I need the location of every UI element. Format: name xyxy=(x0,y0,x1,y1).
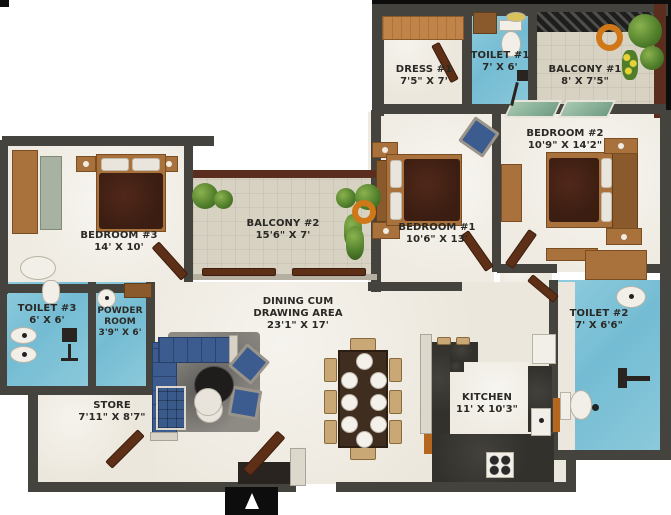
room-name: POWDER ROOM xyxy=(94,306,146,328)
shower-base xyxy=(61,358,78,361)
room-size: 7' X 6'6" xyxy=(554,320,644,332)
room-size: 15'6" X 7' xyxy=(228,230,338,242)
pillow xyxy=(132,158,160,171)
room-size: 10'9" X 14'2" xyxy=(510,140,620,152)
shower-stand xyxy=(68,344,71,358)
wall xyxy=(550,450,671,460)
sofa xyxy=(158,337,230,363)
wall-maroon xyxy=(193,170,377,178)
room-name: BEDROOM #3 xyxy=(64,230,174,242)
dress-wardrobe xyxy=(382,16,464,40)
pillow xyxy=(390,160,402,188)
planter-ring xyxy=(596,24,623,51)
bed-mattress xyxy=(404,159,460,221)
wardrobe xyxy=(501,164,522,222)
kitchen-partition xyxy=(420,334,432,434)
nightstand xyxy=(606,228,642,245)
pillow xyxy=(601,192,612,222)
floor-plan: DRESS #1 7'5" X 7' TOILET #1 7' X 6' BAL… xyxy=(0,0,671,515)
vanity xyxy=(585,250,647,280)
room-size: 10'6" X 13' xyxy=(382,234,492,246)
toilet-flush xyxy=(22,352,27,357)
plant-icon xyxy=(628,14,662,48)
wall xyxy=(660,110,671,460)
room-label-dining: DINING CUM DRAWING AREA 23'1" X 17' xyxy=(248,296,348,333)
room-name: KITCHEN xyxy=(437,392,537,404)
room-label-toilet-3: TOILET #3 6' X 6' xyxy=(7,303,87,327)
plate xyxy=(341,372,358,389)
room-size: 7'5" X 7' xyxy=(384,76,464,88)
plant-icon xyxy=(640,46,664,70)
room-size: 6' X 6' xyxy=(7,315,87,327)
sink-drain xyxy=(105,296,109,300)
floor-drain xyxy=(592,404,599,411)
kitchen-counter xyxy=(450,362,464,372)
dining-chair xyxy=(324,358,337,382)
room-label-bedroom-1: BEDROOM #1 10'6" X 13' xyxy=(382,222,492,246)
wall xyxy=(0,140,8,294)
toilet1-cabinet xyxy=(473,12,497,34)
nightstand xyxy=(76,156,96,172)
room-label-bedroom-2: BEDROOM #2 10'9" X 14'2" xyxy=(510,128,620,152)
bed-mattress xyxy=(549,158,599,222)
toilet-flush xyxy=(22,333,27,338)
dining-chair xyxy=(389,390,402,414)
dining-chair xyxy=(324,390,337,414)
pillow xyxy=(601,158,612,188)
wall xyxy=(2,284,144,293)
room-size: 14' X 10' xyxy=(64,242,174,254)
sofa-armrest xyxy=(150,432,178,441)
room-name: STORE xyxy=(62,400,162,412)
pillow xyxy=(390,192,402,220)
room-name: BEDROOM #1 xyxy=(382,222,492,234)
room-label-kitchen: KITCHEN 11' X 10'3" xyxy=(437,392,537,416)
wardrobe-panel xyxy=(40,156,62,230)
dining-chair xyxy=(324,420,337,444)
room-name: TOILET #3 xyxy=(7,303,87,315)
north-arrow-icon xyxy=(245,493,259,509)
room-label-powder-room: POWDER ROOM 3'9" X 6' xyxy=(94,306,146,339)
sink-drain xyxy=(629,294,634,299)
pillow xyxy=(101,158,129,171)
bed-mattress xyxy=(99,173,163,229)
plant-icon xyxy=(214,190,233,209)
room-size: 8' X 7'5" xyxy=(539,76,631,88)
ottoman xyxy=(20,256,56,280)
room-size: 7' X 6' xyxy=(460,62,540,74)
kitchen-accent xyxy=(424,434,432,454)
dining-chair xyxy=(350,447,376,460)
plate xyxy=(370,394,387,411)
shelf xyxy=(124,283,152,298)
wall xyxy=(0,276,7,394)
plate xyxy=(370,416,387,433)
kitchen-counter xyxy=(450,342,478,362)
shower-head xyxy=(618,368,627,388)
wall xyxy=(184,142,193,282)
kitchen-accent xyxy=(553,398,560,432)
plate xyxy=(356,431,373,448)
room-label-toilet-2: TOILET #2 7' X 6'6" xyxy=(554,308,644,332)
room-label-toilet-1: TOILET #1 7' X 6' xyxy=(460,50,540,74)
plate xyxy=(341,416,358,433)
stove xyxy=(486,452,514,478)
planter-ring xyxy=(352,200,376,224)
room-size: 11' X 10'3" xyxy=(437,404,537,416)
wall xyxy=(0,386,158,395)
room-name: TOILET #2 xyxy=(554,308,644,320)
room-size: 7'11" X 8'7" xyxy=(62,412,162,424)
room-label-dress-1: DRESS #1 7'5" X 7' xyxy=(384,64,464,88)
balcony-bench xyxy=(202,268,276,276)
sink xyxy=(42,280,60,304)
sink xyxy=(506,12,526,22)
wall xyxy=(336,482,576,492)
room-name: BALCONY #1 xyxy=(539,64,631,76)
room-size: 23'1" X 17' xyxy=(248,320,348,332)
sink-drain xyxy=(539,418,544,423)
cutting-board xyxy=(437,337,451,345)
dining-chair xyxy=(389,420,402,444)
cutting-board xyxy=(456,337,470,345)
room-name: BALCONY #2 xyxy=(228,218,338,230)
room-size: 3'9" X 6' xyxy=(94,328,146,339)
entry-pillar xyxy=(290,448,306,486)
dining-chair xyxy=(389,358,402,382)
window-glass xyxy=(558,100,616,118)
room-label-balcony-1: BALCONY #1 8' X 7'5" xyxy=(539,64,631,88)
wall xyxy=(368,282,462,291)
wall xyxy=(28,388,38,492)
backdrop-corner xyxy=(0,0,9,7)
fridge xyxy=(532,334,556,364)
room-label-balcony-2: BALCONY #2 15'6" X 7' xyxy=(228,218,338,242)
plant-icon xyxy=(346,226,364,260)
round-table xyxy=(194,388,222,416)
room-label-bedroom-3: BEDROOM #3 14' X 10' xyxy=(64,230,174,254)
headboard xyxy=(612,148,638,232)
room-name: DRESS #1 xyxy=(384,64,464,76)
plate xyxy=(370,372,387,389)
room-label-store: STORE 7'11" X 8'7" xyxy=(62,400,162,424)
wall xyxy=(2,136,214,146)
room-name: BEDROOM #2 xyxy=(510,128,620,140)
wall xyxy=(497,264,557,273)
plate xyxy=(341,394,358,411)
room-name: DINING CUM DRAWING AREA xyxy=(248,296,348,320)
plate xyxy=(356,353,373,370)
shower-head xyxy=(62,328,77,342)
toilet-bowl xyxy=(570,390,592,420)
north-arrow xyxy=(225,487,278,515)
wardrobe xyxy=(12,150,38,234)
balcony-bench xyxy=(292,268,366,276)
room-name: TOILET #1 xyxy=(460,50,540,62)
kitchen-counter xyxy=(432,342,450,434)
